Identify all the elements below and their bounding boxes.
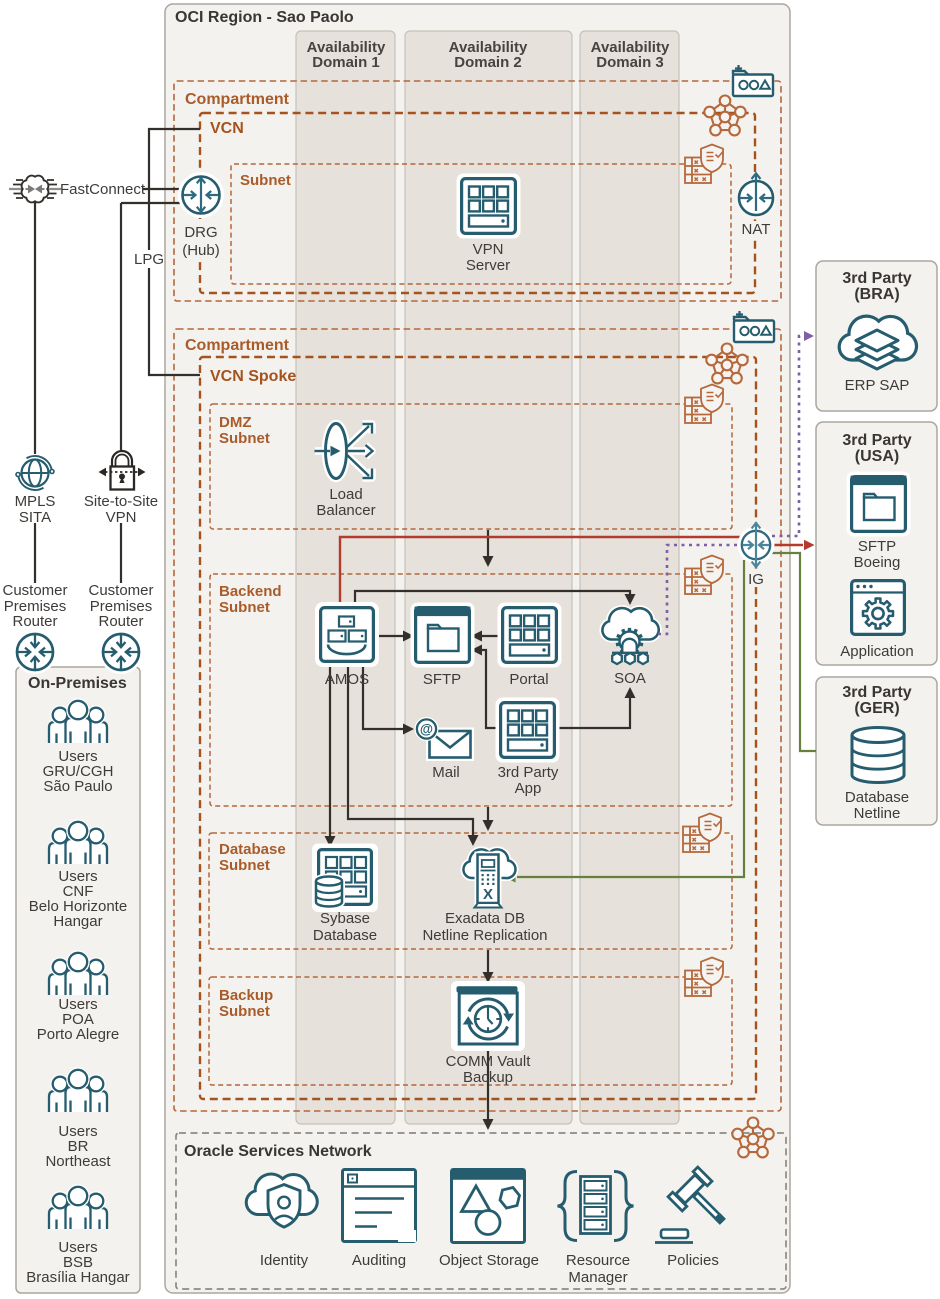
svg-text:Auditing: Auditing [352,1252,406,1269]
svg-text:Boeing: Boeing [854,554,901,571]
svg-text:Hangar: Hangar [53,913,102,930]
svg-text:Database: Database [845,789,909,806]
svg-text:Application: Application [840,643,913,660]
svg-text:DMZ: DMZ [219,414,252,431]
svg-text:LPG: LPG [134,251,164,268]
svg-text:Compartment: Compartment [185,91,290,108]
svg-text:Subnet: Subnet [219,857,270,874]
svg-text:Backup: Backup [219,987,273,1004]
svg-text:Subnet: Subnet [240,172,291,189]
svg-text:DRG: DRG [184,224,217,241]
svg-text:(USA): (USA) [855,448,899,465]
svg-text:3rd Party: 3rd Party [842,432,911,449]
svg-text:VCN Spoke: VCN Spoke [210,368,296,385]
svg-text:Backup: Backup [463,1069,513,1086]
svg-text:3rd Party: 3rd Party [842,684,911,701]
svg-text:SOA: SOA [614,670,646,687]
svg-text:X: X [483,886,493,903]
svg-text:Site-to-Site: Site-to-Site [84,493,158,510]
svg-text:Identity: Identity [260,1252,309,1269]
svg-text:Portal: Portal [509,671,548,688]
svg-text:App: App [515,780,542,797]
svg-text:Manager: Manager [568,1269,627,1286]
svg-text:Subnet: Subnet [219,430,270,447]
svg-text:3rd Party: 3rd Party [842,270,911,287]
svg-text:São Paulo: São Paulo [43,778,112,795]
svg-text:Compartment: Compartment [185,337,290,354]
svg-text:Subnet: Subnet [219,1003,270,1020]
svg-text:Exadata DB: Exadata DB [445,910,525,927]
svg-text:Mail: Mail [432,764,460,781]
svg-text:Backend: Backend [219,583,282,600]
svg-text:SITA: SITA [19,509,51,526]
svg-text:Object Storage: Object Storage [439,1252,539,1269]
svg-text:On-Premises: On-Premises [28,675,127,692]
svg-text:IG: IG [748,571,764,588]
svg-text:Load: Load [329,486,362,503]
svg-text:Netline: Netline [854,805,901,822]
svg-text:ERP SAP: ERP SAP [845,377,910,394]
svg-text:Domain 2: Domain 2 [454,54,522,71]
svg-text:VPN: VPN [473,241,504,258]
svg-text:SFTP: SFTP [423,671,461,688]
svg-text:Database: Database [313,927,377,944]
svg-text:(GER): (GER) [854,700,899,717]
svg-text:3rd Party: 3rd Party [498,764,559,781]
svg-text:VCN: VCN [210,120,244,137]
svg-text:Server: Server [466,257,510,274]
svg-text:Balancer: Balancer [316,502,375,519]
svg-text:Customer: Customer [88,582,153,599]
svg-text:Oracle Services Network: Oracle Services Network [184,1143,372,1160]
svg-text:Porto Alegre: Porto Alegre [37,1026,120,1043]
svg-text:OCI Region - Sao Paolo: OCI Region - Sao Paolo [175,9,354,26]
svg-text:AMOS: AMOS [325,671,369,688]
svg-text:Northeast: Northeast [45,1153,111,1170]
svg-text:Policies: Policies [667,1252,719,1269]
svg-text:COMM Vault: COMM Vault [446,1053,532,1070]
svg-text:Subnet: Subnet [219,599,270,616]
svg-text:Domain 1: Domain 1 [312,54,380,71]
svg-text:Database: Database [219,841,286,858]
svg-text:Customer: Customer [2,582,67,599]
svg-text:Sybase: Sybase [320,910,370,927]
svg-text:NAT: NAT [742,221,771,238]
svg-text:MPLS: MPLS [15,493,56,510]
svg-text:VPN: VPN [106,509,137,526]
svg-text:SFTP: SFTP [858,538,896,555]
svg-text:(BRA): (BRA) [854,286,899,303]
svg-text:FastConnect: FastConnect [60,181,146,198]
svg-text:Resource: Resource [566,1252,630,1269]
svg-text:Router: Router [98,613,143,630]
svg-text:@: @ [420,722,433,737]
svg-text:Router: Router [12,613,57,630]
svg-text:(Hub): (Hub) [182,242,220,259]
svg-text:Brasília Hangar: Brasília Hangar [26,1269,129,1286]
svg-text:Domain 3: Domain 3 [596,54,664,71]
svg-text:Netline Replication: Netline Replication [422,927,547,944]
